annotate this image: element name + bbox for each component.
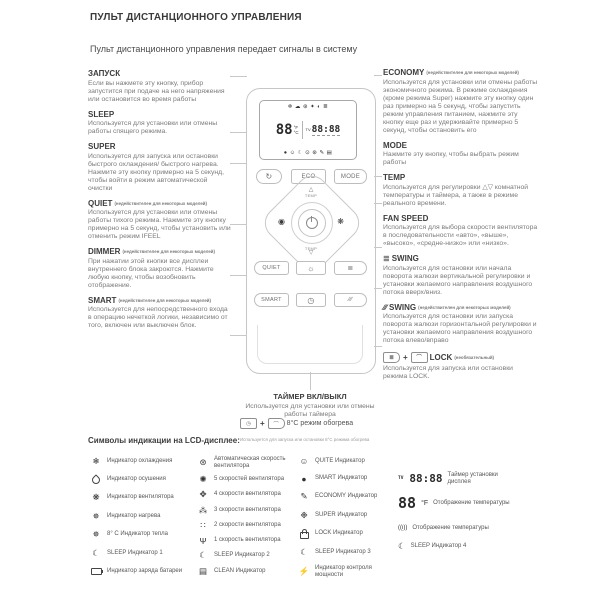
page-subtitle: Пульт дистанционного управления передает…	[90, 44, 357, 54]
section-sleep: SLEEP Используется для установки или отм…	[88, 111, 231, 137]
legend-column-4: TV 88:88 Таймер установки дисплея 88 °F …	[398, 466, 520, 561]
callout-line	[230, 132, 247, 133]
legend-column-1: ❄Индикатор охлажденияИндикатор осушения❋…	[90, 456, 196, 576]
lcd-status-icons: ● ☺ ☾ ⊙ ⊛ ✎ ▤	[263, 150, 353, 156]
section-body: Используется для установки или отмены ра…	[88, 209, 231, 241]
heat-8c-footnote: Используется для запуска или остановки 8…	[240, 437, 450, 442]
right-column: ECONOMY(недействителен для некоторых мод…	[383, 69, 539, 388]
fan-speed-button: ❋	[337, 217, 344, 226]
timer-button: ◷	[296, 293, 326, 307]
section-heading: ≣SWING	[383, 255, 539, 263]
swing-button-icon: ⌒	[268, 418, 285, 429]
section-heading: ЗАПУСК	[88, 70, 231, 78]
timer-digits: 88:88	[409, 472, 442, 485]
section-heading: SUPER	[88, 143, 231, 151]
section-swing-vertical: ≣SWING Используется для остановки или на…	[383, 255, 539, 297]
deg-c: °C	[294, 130, 299, 135]
signal-icon: ((ᴉ))	[398, 525, 407, 531]
down-arrow-icon: ▽	[274, 251, 348, 256]
section-heading: QUIET(недействителен для некоторых модел…	[88, 200, 231, 208]
quiet-button: QUIET	[254, 261, 289, 275]
section-body: Используется для непосредственного входа…	[88, 306, 231, 330]
section-body: Нажмите эту кнопку, чтобы выбрать режим …	[383, 151, 539, 167]
dot-icon: ●	[298, 474, 310, 484]
water-drop-icon	[90, 476, 102, 484]
legend-label: SLEEP Индикатор 2	[214, 552, 270, 559]
swing-h-button-icon: ⌒	[411, 352, 428, 363]
legend-item: Ψ1 скорость вентилятора	[197, 536, 297, 546]
legend-label: 5 скоростей вентилятора	[214, 476, 284, 483]
legend-label: QUITE Индикатор	[315, 458, 365, 465]
plus-sign: +	[403, 354, 408, 362]
legend-item: ❉SUPER Индикатор	[298, 510, 394, 521]
pencil-icon: ✎	[298, 491, 310, 502]
temp-digits: 88	[398, 494, 416, 512]
section-heading: SMART(недействителен для некоторых модел…	[88, 297, 231, 305]
swing-button-icon: ≣	[383, 352, 400, 363]
fan-speed-2-icon: ∷	[197, 520, 209, 531]
section-body: Используется для регулировки △▽ комнатно…	[383, 184, 539, 208]
callout-line	[374, 346, 382, 347]
legend-label: 2 скорости вентилятора	[214, 522, 281, 529]
legend-label: 4 скорости вентилятора	[214, 491, 281, 498]
temp-label: TEMP	[274, 193, 348, 198]
legend-label: Индикатор осушения	[107, 476, 166, 483]
section-note: (недействителен для некоторых моделей)	[114, 200, 207, 208]
left-column: ЗАПУСК Если вы нажмете эту кнопку, прибо…	[88, 70, 231, 337]
power-button	[298, 209, 326, 237]
lcd-tv-tag: TV	[306, 127, 311, 132]
tv-tag: TV	[398, 476, 403, 481]
remote-lower-face	[257, 325, 363, 364]
section-body: Используется для остановки или запуска п…	[383, 313, 539, 345]
section-heading: TEMP	[383, 174, 539, 182]
legend-item: ☾SLEEP Индикатор 1	[90, 548, 196, 559]
section-note: (недействителен для некоторых моделей)	[418, 304, 511, 312]
legend-label: Индикатор нагрева	[107, 513, 160, 520]
callout-line	[230, 76, 247, 77]
callout-line	[230, 163, 247, 164]
fan-speed-1-icon: Ψ	[197, 536, 209, 546]
section-fan-speed: FAN SPEED Используется для выбора скорос…	[383, 215, 539, 249]
manual-page: ПУЛЬТ ДИСТАНЦИОННОГО УПРАВЛЕНИЯ Пульт ди…	[0, 0, 600, 600]
legend-item: ❋Индикатор вентилятора	[90, 492, 196, 503]
dimmer-button: ☼	[296, 261, 326, 275]
section-heading: ≣ + ⌒ LOCK(необязательный)	[383, 352, 539, 363]
auto-fan-icon: ⊛	[197, 457, 209, 468]
legend-item: ▤CLEAN Индикатор	[197, 566, 297, 577]
smart-button: SMART	[254, 293, 289, 307]
legend-item: ☾SLEEP Индикатор 2	[197, 550, 297, 561]
legend-item: LOCK Индикатор	[298, 528, 394, 539]
battery-icon	[90, 568, 102, 575]
lock-icon	[298, 528, 310, 539]
remote-control-illustration: ❄ ☁ ⊛ ✦ ◐ ≣ 88 °F °C TV 88:88 ● ☺ ☾ ⊙ ⊛ …	[246, 88, 376, 374]
clean-icon: ▤	[197, 566, 209, 577]
moon-icon: ☾	[398, 541, 406, 552]
callout-line	[374, 203, 382, 204]
legend-item: ✎ECONOMY Индикатор	[298, 491, 394, 502]
legend-item-temp-display: 88 °F Отображение температуры	[398, 494, 520, 512]
section-note: (недействителен для некоторых моделей)	[118, 297, 211, 305]
section-note: (недействителен для некоторых моделей)	[426, 69, 519, 77]
section-body: Используется для запуска или остановки б…	[88, 153, 231, 193]
legend-heading: Символы индикации на LCD-дисплее:	[88, 436, 240, 445]
legend-item-signal: ((ᴉ)) Отображение температуры	[398, 525, 520, 532]
section-heading: FAN SPEED	[383, 215, 539, 223]
legend-label: Индикатор контроля мощности	[315, 565, 394, 578]
legend-item: ✵8° C Индикатор тепла	[90, 529, 196, 540]
swing-vertical-button: ≣	[334, 261, 367, 275]
moon-icon: ☾	[90, 548, 102, 559]
callout-line	[310, 372, 311, 390]
section-dimmer: DIMMER(недействителен для некоторых моде…	[88, 248, 231, 290]
legend-item: ⁂3 скорости вентилятора	[197, 505, 297, 516]
legend-item: ✺5 скоростей вентилятора	[197, 474, 297, 485]
section-mode: MODE Нажмите эту кнопку, чтобы выбрать р…	[383, 142, 539, 168]
legend-label: Отображение температуры	[433, 500, 509, 507]
legend-label: Отображение температуры	[412, 525, 488, 532]
legend-item: ●SMART Индикатор	[298, 474, 394, 484]
power-button-ring	[291, 202, 333, 244]
page-title: ПУЛЬТ ДИСТАНЦИОННОГО УПРАВЛЕНИЯ	[90, 12, 302, 23]
legend-item: ⚡Индикатор контроля мощности	[298, 565, 394, 578]
section-body: Используется для установки или отмены ра…	[88, 120, 231, 136]
heat-icon: ✵	[90, 511, 102, 522]
legend-label: SMART Индикатор	[315, 475, 367, 482]
section-body: Если вы нажмете эту кнопку, прибор запус…	[88, 80, 231, 104]
section-body: Используется для запуска или остановки р…	[383, 365, 539, 381]
section-heading: ∕∕∕SWING(недействителен для некоторых мо…	[383, 304, 539, 312]
section-heading: DIMMER(недействителен для некоторых моде…	[88, 248, 231, 256]
mode-button: MODE	[334, 169, 367, 184]
sleep-button: ↻	[256, 169, 282, 184]
combo-label: 8°C режим обогрева	[287, 420, 353, 427]
vertical-swing-icon: ≣	[383, 255, 390, 263]
legend-item: Индикатор осушения	[90, 475, 196, 485]
legend-item: ☾SLEEP Индикатор 3	[298, 547, 394, 558]
legend-label: 1 скорость вентилятора	[214, 537, 281, 544]
super-button: ◉	[278, 217, 285, 226]
section-heading: ТАЙМЕР ВКЛ/ВЫКЛ	[238, 392, 382, 401]
fan-speed-3-icon: ⁂	[197, 505, 209, 516]
deg-f-unit: °F	[421, 500, 428, 507]
legend-item: ∷2 скорости вентилятора	[197, 520, 297, 531]
section-economy: ECONOMY(недействителен для некоторых мод…	[383, 69, 539, 135]
section-heading: SLEEP	[88, 111, 231, 119]
heat-8c-icon: ✵	[90, 529, 102, 540]
callout-line	[374, 176, 382, 177]
legend-label: SUPER Индикатор	[315, 512, 367, 519]
callout-line	[230, 224, 247, 225]
section-zapusk: ЗАПУСК Если вы нажмете эту кнопку, прибо…	[88, 70, 231, 104]
dpad: △ TEMP TEMP ▽ ◉ ❋	[274, 185, 348, 259]
section-body: Используется для выбора скорости вентиля…	[383, 224, 539, 248]
section-heading: MODE	[383, 142, 539, 150]
swing-horizontal-button: ∕∕∕	[334, 293, 367, 307]
callout-line	[230, 275, 247, 276]
smiley-icon: ☺	[298, 456, 310, 466]
section-temp: TEMP Используется для регулировки △▽ ком…	[383, 174, 539, 208]
sparkle-icon: ❉	[298, 510, 310, 521]
legend-label: Индикатор охлаждения	[107, 458, 172, 465]
section-heading: ECONOMY(недействителен для некоторых мод…	[383, 69, 539, 77]
section-super: SUPER Используется для запуска или остан…	[88, 143, 231, 193]
legend-item: ⊛Автоматическая скорость вентилятора	[197, 456, 297, 469]
legend-item: ✥4 скорости вентилятора	[197, 489, 297, 500]
callout-line	[374, 288, 382, 289]
callout-line	[374, 247, 382, 248]
horizontal-swing-icon: ∕∕∕	[383, 304, 387, 312]
plus-sign: +	[260, 419, 265, 428]
legend-column-2: ⊛Автоматическая скорость вентилятора✺5 с…	[197, 456, 297, 577]
section-body: При нажатии этой кнопки все дисплеи внут…	[88, 258, 231, 290]
legend-label: SLEEP Индикатор 3	[315, 549, 371, 556]
legend-label: Автоматическая скорость вентилятора	[214, 456, 297, 469]
legend-label: CLEAN Индикатор	[214, 568, 265, 575]
legend-item-sleep4: ☾ SLEEP Индикатор 4	[398, 541, 520, 552]
lcd-mode-icons: ❄ ☁ ⊛ ✦ ◐ ≣	[263, 104, 353, 110]
section-note: (необязательный)	[454, 354, 494, 362]
legend-label: LOCK Индикатор	[315, 530, 363, 537]
temp-up-button: △ TEMP	[274, 188, 348, 198]
moon-icon: ☾	[197, 550, 209, 561]
legend-column-3: ☺QUITE Индикатор●SMART Индикатор✎ECONOMY…	[298, 456, 394, 578]
power-icon	[306, 217, 318, 229]
section-note: (недействителен для некоторых моделей)	[122, 248, 215, 256]
section-body: Используется для установки или отмены ра…	[238, 403, 382, 419]
fan-icon: ❋	[90, 492, 102, 503]
lcd-display: ❄ ☁ ⊛ ✦ ◐ ≣ 88 °F °C TV 88:88 ● ☺ ☾ ⊙ ⊛ …	[259, 100, 357, 160]
legend-item: ✵Индикатор нагрева	[90, 511, 196, 522]
legend-label: ECONOMY Индикатор	[315, 493, 377, 500]
section-body: Используется для установки или отмены ра…	[383, 79, 539, 135]
legend-item: Индикатор заряда батареи	[90, 566, 196, 576]
temp-down-button: TEMP ▽	[274, 246, 348, 256]
section-smart: SMART(недействителен для некоторых модел…	[88, 297, 231, 331]
moon-icon: ☾	[298, 547, 310, 558]
callout-line	[374, 75, 382, 76]
section-quiet: QUIET(недействителен для некоторых модел…	[88, 200, 231, 242]
legend-label: SLEEP Индикатор 4	[411, 543, 467, 550]
section-lock: ≣ + ⌒ LOCK(необязательный) Используется …	[383, 352, 539, 381]
fan-speed-4-icon: ✥	[197, 489, 209, 500]
lcd-main-readout: 88 °F °C TV 88:88	[263, 121, 353, 139]
legend-item: ❄Индикатор охлаждения	[90, 456, 196, 467]
legend-label: Индикатор заряда батареи	[107, 568, 182, 575]
lcd-degree-units: °F °C	[294, 125, 299, 135]
lcd-time: 88:88	[312, 124, 341, 136]
fan-speed-5-icon: ✺	[197, 474, 209, 485]
section-body: Используется для остановки или начала по…	[383, 265, 539, 297]
legend-label: SLEEP Индикатор 1	[107, 550, 163, 557]
lcd-divider	[302, 121, 303, 139]
timer-button-icon: ◷	[240, 418, 257, 429]
lcd-time-readout: TV 88:88	[306, 124, 341, 136]
callout-line	[230, 335, 247, 336]
snowflake-icon: ❄	[90, 456, 102, 467]
legend-label: 8° C Индикатор тепла	[107, 531, 168, 538]
legend-label: Таймер установки дисплея	[448, 472, 520, 485]
section-swing-horizontal: ∕∕∕SWING(недействителен для некоторых мо…	[383, 304, 539, 346]
legend-item-timer-display: TV 88:88 Таймер установки дисплея	[398, 472, 520, 485]
heat-8c-combo: ◷ + ⌒ 8°C режим обогрева	[240, 418, 390, 429]
bolt-icon: ⚡	[298, 566, 310, 577]
lcd-temperature: 88	[276, 122, 293, 138]
section-timer: ТАЙМЕР ВКЛ/ВЫКЛ Используется для установ…	[238, 392, 382, 419]
legend-label: Индикатор вентилятора	[107, 494, 174, 501]
legend-label: 3 скорости вентилятора	[214, 507, 281, 514]
legend-item: ☺QUITE Индикатор	[298, 456, 394, 466]
